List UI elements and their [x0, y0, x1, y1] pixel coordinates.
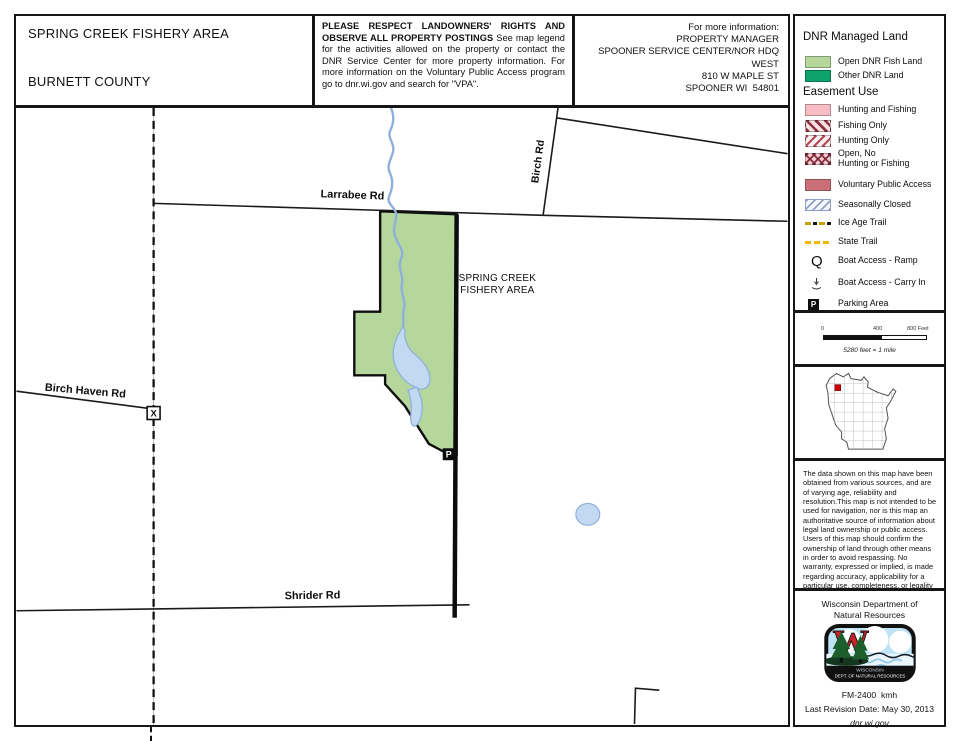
scale-tick-0: 0	[821, 326, 824, 332]
agency-name: Wisconsin Department of Natural Resource…	[795, 599, 944, 621]
voluntary-public-access-swatch	[805, 179, 831, 191]
birch-road-label: Birch Rd	[530, 139, 547, 184]
parking-marker-label: P	[446, 450, 452, 460]
legend-heading-managed: DNR Managed Land	[803, 31, 908, 43]
legend-item-other-dnr-land: Other DNR Land	[805, 69, 940, 83]
contact-box: For more information: PROPERTY MANAGER S…	[573, 14, 790, 107]
dnr-website: dnr.wi.gov	[795, 718, 944, 728]
agency-line2: Natural Resources	[795, 610, 944, 621]
map-svg: P X Larrabee Rd Birch Rd Birch Haven Rd …	[16, 108, 788, 725]
scale-box: 0 400 800 Feet 5280 feet = 1 mile	[793, 311, 946, 366]
access-road-thick-line	[455, 214, 457, 617]
wisconsin-inset-map	[811, 370, 929, 456]
legend-label: Fishing Only	[838, 121, 887, 131]
legend-box: DNR Managed Land Open DNR Fish Land Othe…	[793, 14, 946, 312]
other-dnr-land-swatch	[805, 70, 831, 82]
credits-box: Wisconsin Department of Natural Resource…	[793, 589, 946, 727]
title-box: SPRING CREEK FISHERY AREA BURNETT COUNTY	[14, 14, 314, 107]
cloud-shape	[889, 631, 911, 653]
larrabee-road-extension	[543, 215, 787, 221]
legend-heading-easement: Easement Use	[803, 86, 878, 98]
legend-label: Open, No Hunting or Fishing	[838, 149, 909, 168]
scale-bar-filled	[824, 336, 882, 339]
contact-line: PROPERTY MANAGER	[584, 34, 779, 46]
agency-line1: Wisconsin Department of	[795, 599, 944, 610]
legend-label: Seasonally Closed	[838, 200, 911, 210]
northeast-road-line	[557, 118, 788, 154]
legend-item-boat-access-carry-in: Boat Access - Carry In	[805, 276, 940, 290]
birch-haven-road-label: Birch Haven Rd	[44, 382, 126, 401]
legend-label: Boat Access - Ramp	[838, 256, 918, 266]
page-title: SPRING CREEK FISHERY AREA	[28, 26, 229, 41]
legend-item-fishing-only: Fishing Only	[805, 119, 940, 133]
shrider-road-label: Shrider Rd	[285, 589, 341, 602]
state-trail-line-swatch	[805, 241, 831, 244]
logo-text-line2: DEPT. OF NATURAL RESOURCES	[834, 674, 905, 679]
legend-item-voluntary-public-access: Voluntary Public Access	[805, 178, 940, 192]
larrabee-road-line	[154, 203, 543, 215]
gate-marker: X	[147, 407, 160, 420]
inset-box	[793, 365, 946, 460]
legend-item-open-dnr-fish-land: Open DNR Fish Land	[805, 55, 940, 69]
shrider-road-line	[16, 605, 469, 611]
map-page: SPRING CREEK FISHERY AREA BURNETT COUNTY…	[0, 0, 960, 741]
legend-item-hunting-only: Hunting Only	[805, 134, 940, 148]
south-road-segment	[634, 688, 659, 724]
legend-item-parking-area: P Parking Area	[805, 297, 940, 311]
logo-text-line1: WISCONSIN	[856, 668, 884, 674]
legend-label-line2: Hunting or Fishing	[838, 159, 909, 169]
legend-label: State Trail	[838, 237, 878, 247]
scale-tick-400: 400	[873, 326, 882, 332]
legend-item-hunting-and-fishing: Hunting and Fishing	[805, 103, 940, 117]
legend-label: Ice Age Trail	[838, 218, 886, 228]
hunting-only-swatch	[805, 135, 831, 147]
legend-label: Open DNR Fish Land	[838, 57, 922, 67]
legend-item-boat-access-ramp: Q Boat Access - Ramp	[805, 252, 940, 270]
legend-label: Voluntary Public Access	[838, 180, 931, 190]
ice-age-trail-line-swatch	[805, 222, 831, 225]
legend-label: Boat Access - Carry In	[838, 278, 926, 288]
larrabee-road-label: Larrabee Rd	[320, 188, 384, 202]
parking-icon: P	[808, 299, 819, 310]
legend-label: Other DNR Land	[838, 71, 904, 81]
legend-label: Hunting Only	[838, 136, 889, 146]
contact-line: WEST	[584, 59, 779, 71]
dnr-logo: W WISCONSIN DEPT. OF NATURAL RESOURCES	[822, 622, 918, 684]
parking-marker: P	[443, 448, 455, 460]
legend-item-open-no-hunting-or-fishing: Open, No Hunting or Fishing	[805, 149, 940, 169]
area-label-line1: SPRING CREEK	[459, 273, 537, 284]
map-canvas: P X Larrabee Rd Birch Rd Birch Haven Rd …	[14, 106, 790, 727]
legend-label: Parking Area	[838, 299, 888, 309]
legend-item-ice-age-trail: Ice Age Trail	[805, 216, 940, 230]
seasonally-closed-swatch	[805, 199, 831, 211]
pond	[576, 503, 600, 525]
open-fish-land-swatch	[805, 56, 831, 68]
revision-date: Last Revision Date: May 30, 2013	[795, 704, 944, 714]
contact-line: SPOONER SERVICE CENTER/NOR HDQ	[584, 46, 779, 58]
birch-road-line	[543, 108, 558, 215]
hunting-fishing-swatch	[805, 104, 831, 116]
contact-line: For more information:	[584, 22, 779, 34]
notice-box: PLEASE RESPECT LANDOWNERS' RIGHTS AND OB…	[313, 14, 574, 107]
contact-line: SPOONER WI 54801	[584, 83, 779, 95]
area-label-line2: FISHERY AREA	[460, 285, 534, 296]
form-code: FM-2400 kmh	[795, 690, 944, 700]
burnett-county-marker	[834, 384, 840, 390]
county-title: BURNETT COUNTY	[28, 74, 150, 89]
fishing-only-swatch	[805, 120, 831, 132]
disclaimer-text: The data shown on this map have been obt…	[803, 469, 936, 599]
legend-item-state-trail: State Trail	[805, 235, 940, 249]
legend-label: Hunting and Fishing	[838, 105, 916, 115]
scale-note: 5280 feet = 1 mile	[795, 347, 944, 354]
scale-tick-800: 800 Feet	[907, 326, 929, 332]
boat-carry-in-icon	[811, 277, 822, 290]
gate-marker-label: X	[150, 408, 157, 419]
open-no-hunting-fishing-swatch	[805, 153, 831, 165]
town-boundary-extension	[150, 727, 152, 741]
disclaimer-box: The data shown on this map have been obt…	[793, 459, 946, 590]
boat-ramp-icon: Q	[805, 253, 823, 270]
legend-item-seasonally-closed: Seasonally Closed	[805, 198, 940, 212]
contact-line: 810 W MAPLE ST	[584, 71, 779, 83]
scale-bar	[823, 335, 927, 340]
